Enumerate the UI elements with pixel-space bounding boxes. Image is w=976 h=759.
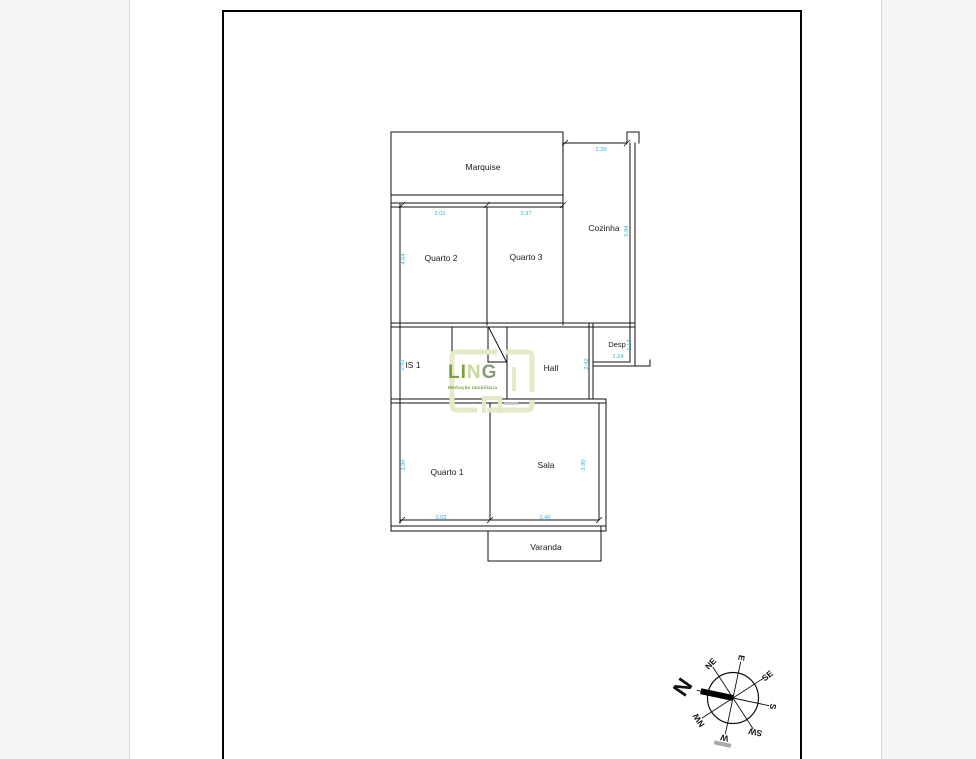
dimension-label: 3.02 <box>434 211 445 217</box>
logo-letter: L <box>448 362 461 383</box>
logo-fine-print <box>504 402 518 405</box>
compass-spoke <box>725 698 733 734</box>
dimension-label: 3.90 <box>581 459 587 470</box>
dimension-label: 4.04 <box>401 253 407 265</box>
compass-spoke <box>733 678 764 698</box>
ling-logo-tagline: Mediação Imobiliária <box>448 385 497 390</box>
room-label-quarto-2: Quarto 2 <box>424 253 457 263</box>
compass-label-e: E <box>736 654 747 662</box>
ling-logo-wordmark: LING <box>448 363 497 382</box>
dimension-label: 3.46 <box>539 515 550 521</box>
compass-label-ne: NE <box>703 656 719 672</box>
room-label-hall: Hall <box>544 363 559 373</box>
dimension-label: 2.42 <box>400 359 406 370</box>
dimension-label: 5.94 <box>624 225 630 237</box>
compass-spoke <box>733 662 741 698</box>
compass-label-s: S <box>768 703 779 711</box>
logo-letter: N <box>467 362 482 383</box>
dimension-ticks <box>399 140 630 523</box>
room-label-cozinha: Cozinha <box>588 223 619 233</box>
room-label-sala: Sala <box>537 460 554 470</box>
dimension-label: 2.39 <box>595 147 606 153</box>
dimension-label: 2.42 <box>584 358 590 369</box>
compass-needle <box>701 691 733 698</box>
dimension-label: 1.13 <box>627 339 633 350</box>
room-label-marquise: Marquise <box>466 162 501 172</box>
room-label-is-1: IS 1 <box>405 360 420 370</box>
dimension-label: 3.90 <box>401 459 407 470</box>
room-label-desp: Desp <box>608 340 626 349</box>
dimension-label: 1.24 <box>612 354 624 360</box>
compass-spoke <box>702 698 733 718</box>
room-label-quarto-1: Quarto 1 <box>430 467 463 477</box>
compass-rose: NNEESESSWWNW <box>668 654 779 748</box>
compass-label-n: N <box>668 673 698 700</box>
dimension-label: 2.37 <box>520 211 531 217</box>
compass-label-nw: NW <box>690 711 707 729</box>
viewer-canvas: MarquiseCozinhaQuarto 2Quarto 3IS 1HallD… <box>0 0 976 759</box>
ling-logo: LING Mediação Imobiliária <box>447 348 537 416</box>
compass-spoke <box>733 698 769 706</box>
dimension-label: 3.02 <box>435 515 446 521</box>
logo-letter: G <box>482 362 498 383</box>
compass-spoke <box>733 698 753 729</box>
room-label-varanda: Varanda <box>530 542 562 552</box>
room-label-quarto-3: Quarto 3 <box>509 252 542 262</box>
compass-label-se: SE <box>760 668 775 683</box>
compass-label-sw: SW <box>747 726 763 739</box>
